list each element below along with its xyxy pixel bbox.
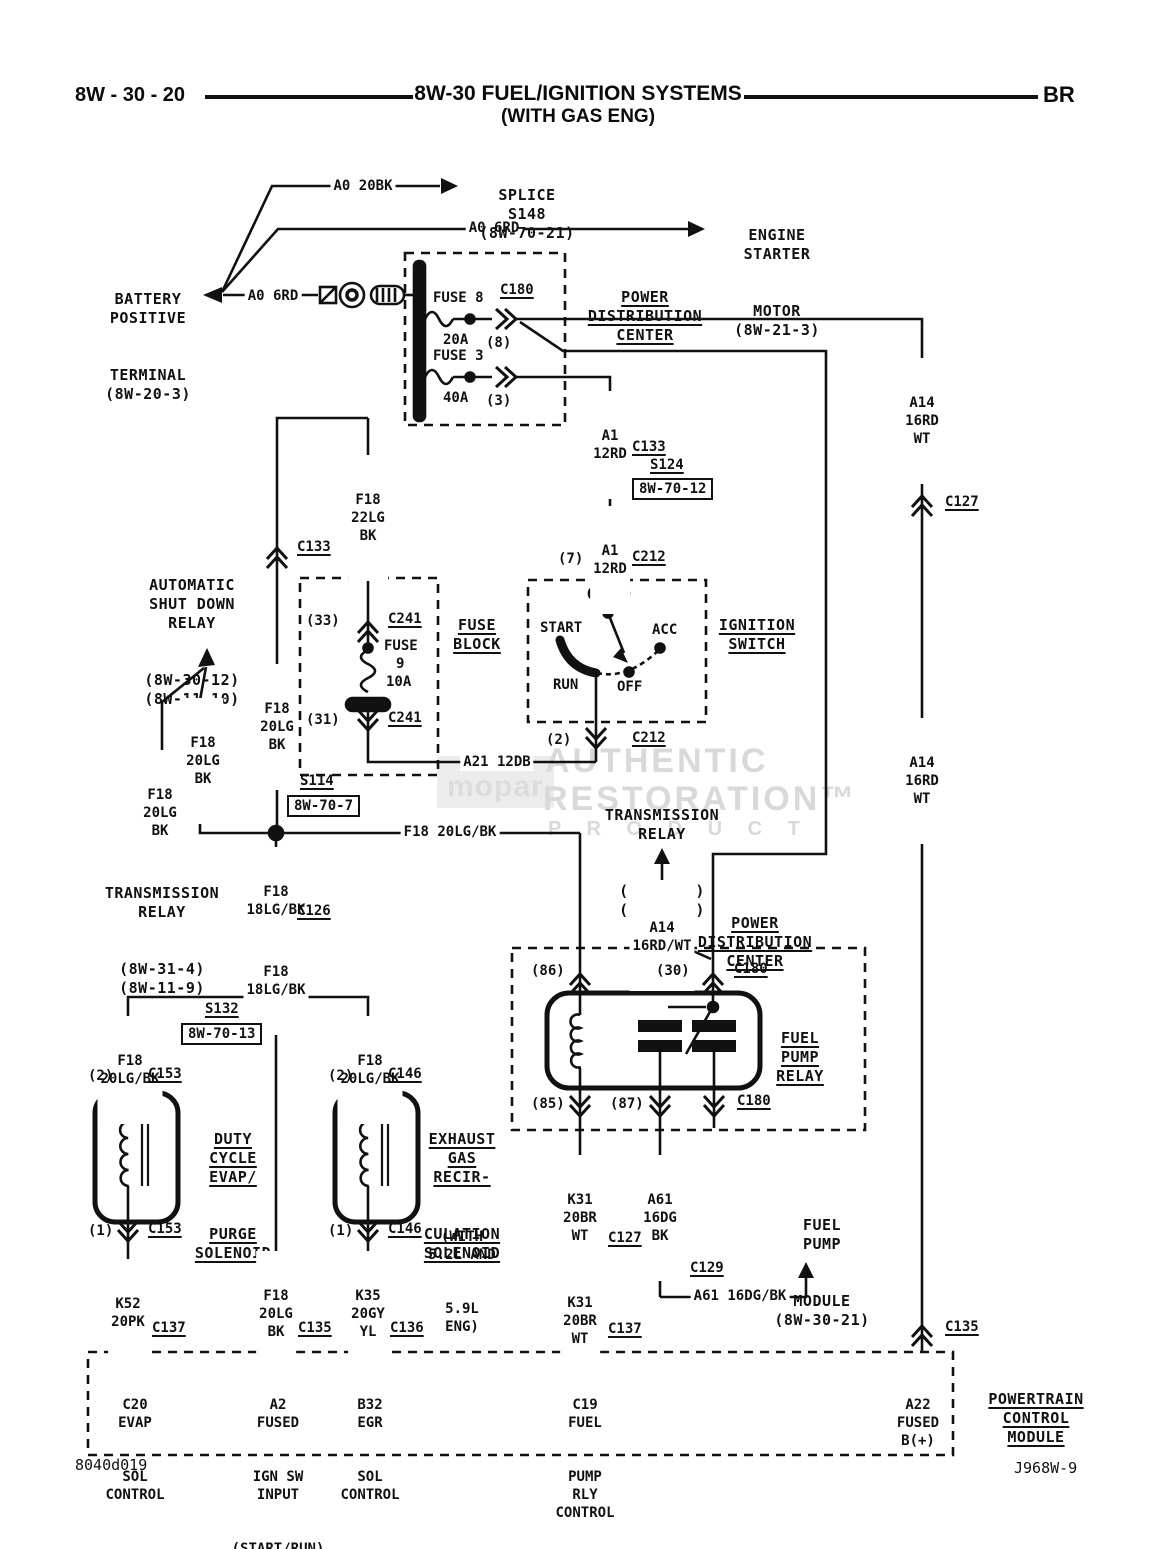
sheet-number: J968W-9 (1014, 1459, 1077, 1477)
pin-86-label: (86) (531, 962, 565, 980)
wiring-diagram-page: mopar AUTHENTIC RESTORATION™ P R O D U C… (0, 0, 1170, 1549)
page-code: 8W - 30 - 20 (75, 84, 185, 107)
fuse9-num: 9 (396, 655, 404, 673)
connector-c136-label: C136 (390, 1319, 424, 1337)
wire-label-a0-20bk: A0 20BK (330, 177, 395, 195)
drawing-number: 8040d019 (75, 1456, 147, 1474)
connector-c129-label: C129 (690, 1259, 724, 1277)
pcm-pin-b32: B32EGR SOLCONTROL (340, 1360, 399, 1540)
connector-c133-left-label: C133 (297, 538, 331, 556)
battery-positive-terminal-label: BATTERYPOSITIVE TERMINAL(8W-20-3) (105, 252, 191, 442)
connector-c137-evap-label: C137 (152, 1319, 186, 1337)
splice-s148-label: SPLICES148(8W-70-21) (479, 148, 574, 281)
evap-pin2-label: (2) (88, 1067, 113, 1085)
fuel-pump-relay-title: FUELPUMPRELAY (776, 991, 824, 1124)
connector-c146-top-label: C146 (388, 1065, 422, 1083)
splice-s114-label: S114 (300, 772, 334, 790)
s124-ref-box: 8W-70-12 (632, 478, 713, 500)
wire-f18-center-bot-label: F1820LGBK (256, 1251, 296, 1377)
pin-87-label: (87) (610, 1095, 644, 1113)
splice-s132-label: S132 (205, 1000, 239, 1018)
connector-c135-center-label: C135 (298, 1319, 332, 1337)
fuse9-amp: 10A (386, 673, 411, 691)
wire-k52-label: K5220PK (108, 1259, 148, 1367)
connector-c241-top-label: C241 (388, 610, 422, 628)
wire-f18-18lg-bot-label: F1818LG/BK (243, 927, 308, 1035)
wire-a1-top-label: A112RD (590, 391, 630, 499)
pin-30-label: (30) (656, 962, 690, 980)
pcm-pin-c20: C20EVAP SOLCONTROL (105, 1360, 164, 1540)
ignition-acc-label: ACC (652, 621, 677, 639)
fuse3-amp: 40A (443, 389, 468, 407)
connector-c133-center-label: C133 (632, 438, 666, 456)
connector-c137-k31-label: C137 (608, 1320, 642, 1338)
pcm-pin-a2: A2FUSED IGN SWINPUT (START/RUN) (232, 1360, 325, 1549)
engine-starter-motor-label: ENGINESTARTER MOTOR(8W-21-3) (734, 188, 820, 378)
pcm-pin-a22: A22FUSEDB(+) (897, 1360, 939, 1486)
fuse-block-title: FUSEBLOCK (453, 578, 501, 692)
connector-c153-bot-label: C153 (148, 1220, 182, 1238)
connector-c127-right-label: C127 (945, 493, 979, 511)
wire-a14-mid-label: A1416RDWT (902, 718, 942, 844)
fuse3-pin: (3) (486, 392, 511, 410)
wire-a21-label: A21 12DB (460, 753, 533, 771)
wire-a1-bot-label: A112RD (590, 506, 630, 614)
connector-c135-right-label: C135 (945, 1318, 979, 1336)
fuse8-pin: (8) (486, 334, 511, 352)
page-subtitle: (WITH GAS ENG) (501, 106, 655, 128)
fuse8-name: FUSE 8 (430, 289, 487, 307)
wire-f18-right-label: F18 20LG/BK (401, 823, 500, 841)
wire-f18-20lg-label: F1820LGBK (257, 664, 297, 790)
connector-c180-label: C180 (500, 281, 534, 299)
connector-c212-bot-label: C212 (632, 729, 666, 747)
egr-pin1-label: (1) (328, 1222, 353, 1240)
starter-arrowhead (688, 221, 705, 237)
wire-f18-22lg-label: F1822LGBK (348, 455, 388, 581)
pdc-relay-title: POWERDISTRIBUTIONCENTER (698, 876, 812, 1009)
s114-ref-box: 8W-70-7 (287, 795, 360, 817)
splice-arrowhead (441, 178, 458, 194)
battery-arrowhead (203, 287, 222, 303)
transmission-relay-left-label: TRANSMISSIONRELAY (8W-31-4)(8W-11-9) (105, 846, 219, 1036)
connector-c180-top-label: C180 (734, 960, 768, 978)
wire-k35-label: K3520GYYL (348, 1251, 388, 1377)
evap-pin1-label: (1) (88, 1222, 113, 1240)
connector-c212-top-label: C212 (632, 548, 666, 566)
ignition-switch-title: IGNITIONSWITCH (719, 578, 795, 692)
wire-f18-mid-label: F1820LGBK (183, 698, 223, 824)
pin-31-label: (31) (306, 711, 340, 729)
wire-a14-top-label: A1416RDWT (902, 358, 942, 484)
connector-c153-top-label: C153 (148, 1065, 182, 1083)
pin-7-label: (7) (558, 550, 583, 568)
connector-c126-label: C126 (297, 902, 331, 920)
page-title: 8W-30 FUEL/IGNITION SYSTEMS (414, 82, 741, 106)
fuse9-name: FUSE (384, 637, 418, 655)
pin-2-label: (2) (546, 731, 571, 749)
connector-c241-bot-label: C241 (388, 709, 422, 727)
connector-c180-bot-label: C180 (737, 1092, 771, 1110)
section-code: BR (1043, 82, 1075, 108)
wire-a61-top-label: A6116DGBK (640, 1155, 680, 1281)
fuse3-name: FUSE 3 (430, 347, 487, 365)
ignition-run-label: RUN (553, 676, 578, 694)
egr-engine-note: (WITH5.2L AND 5.9LENG) (428, 1192, 495, 1372)
wire-label-a0-6rd: A0 6RD (245, 287, 302, 305)
egr-pin2-label: (2) (328, 1067, 353, 1085)
connector-c127-k31-label: C127 (608, 1229, 642, 1247)
connector-c146-bot-label: C146 (388, 1220, 422, 1238)
ignition-off-label: OFF (617, 678, 642, 696)
pin-33-label: (33) (306, 612, 340, 630)
pcm-pin-c19: C19FUEL PUMPRLYCONTROL (555, 1360, 614, 1549)
splice-s124-label: S124 (650, 456, 684, 474)
ignition-start-label: START (540, 619, 582, 637)
fuel-pump-module-label: FUELPUMP MODULE(8W-30-21) (774, 1178, 869, 1368)
battery-terminal-symbols (320, 283, 414, 307)
pin-85-label: (85) (531, 1095, 565, 1113)
s132-ref-box: 8W-70-13 (181, 1023, 262, 1045)
wire-f18-to-relay86 (276, 833, 580, 1015)
pdc-top-title: POWERDISTRIBUTIONCENTER (588, 250, 702, 383)
